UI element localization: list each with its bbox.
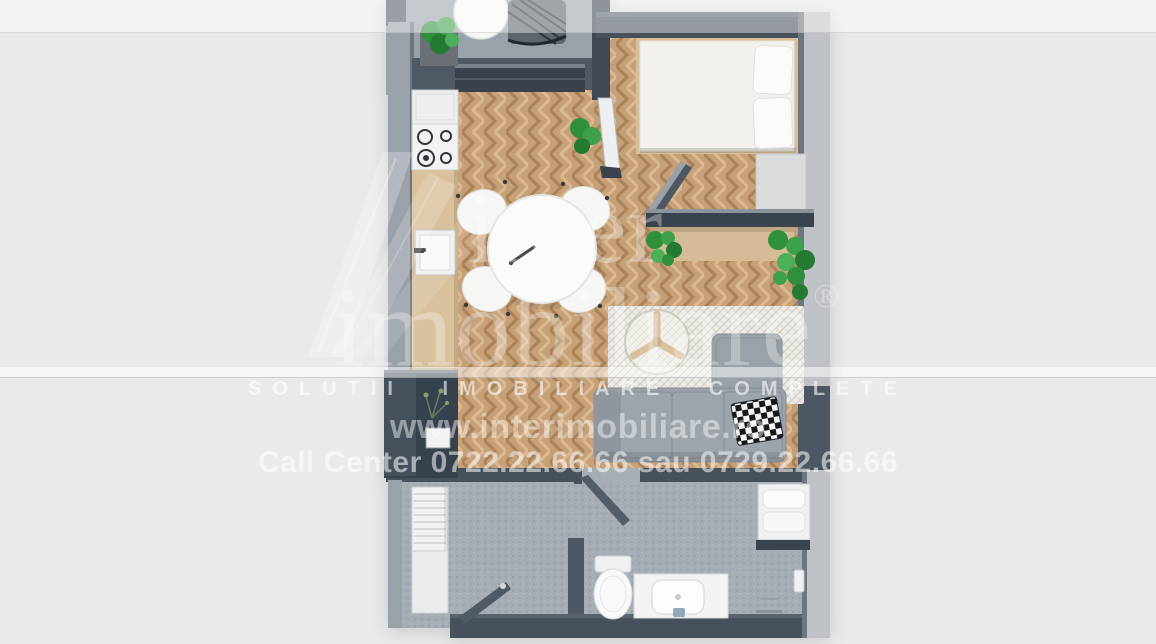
balcony-lounge-chair: [508, 0, 566, 44]
kitchen-fridge: [412, 90, 458, 124]
towel-shelf: [756, 484, 810, 550]
bed-pillow: [753, 97, 793, 148]
hall-cabinet: [412, 551, 448, 613]
sofa-cushion: [672, 392, 724, 458]
radiator: [412, 487, 448, 551]
tv-console: [384, 370, 458, 478]
kitchen-sink: [414, 230, 455, 275]
floor-drain: [756, 610, 782, 613]
checkered-pillow: [731, 396, 784, 445]
door-handle: [500, 583, 506, 589]
floor-plan-render: inter imobiliare® SOLUTII IMOBILIARE COM…: [0, 0, 1156, 644]
decor-frame: [426, 428, 450, 448]
wall-fixture: [794, 570, 804, 592]
dining-table: [488, 195, 596, 303]
coffee-table: [625, 310, 689, 374]
vanity-sink: [634, 574, 728, 618]
balcony-plant: [420, 17, 459, 66]
bed-pillow: [753, 45, 793, 95]
bedside-bench: [756, 154, 806, 216]
sofa-cushion: [620, 392, 672, 458]
sofa-armrest: [594, 390, 620, 460]
kitchen: [412, 90, 458, 372]
apartment-plan: [0, 0, 1156, 644]
toilet: [594, 556, 632, 619]
